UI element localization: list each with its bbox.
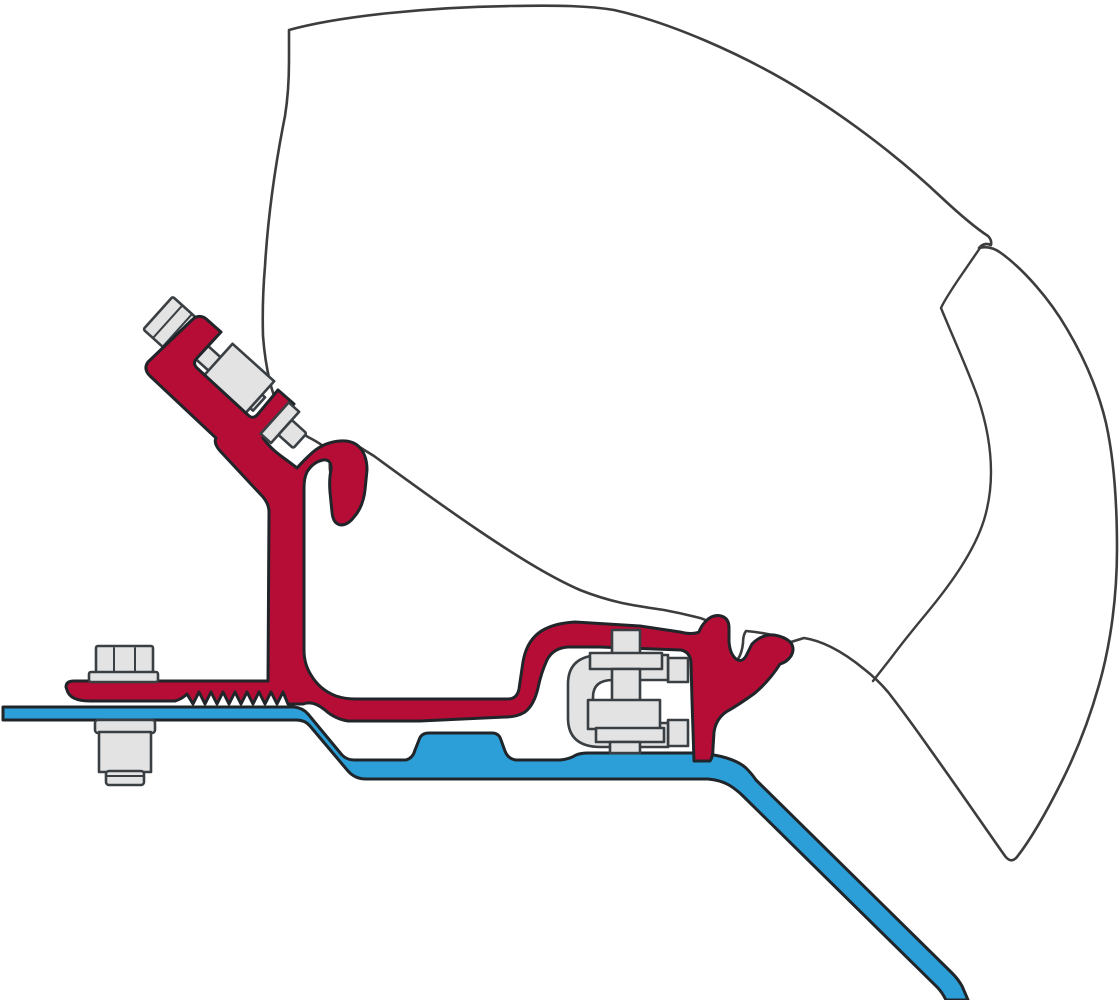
clamp-bolt-lower-shaft [610,742,640,753]
base-bolt-washer [89,672,158,682]
diagram-canvas [0,0,1120,1000]
rivet-nut-tip [106,771,144,785]
awning-case-outline [263,6,1117,861]
clamp-arm-end-tab-top [668,658,688,682]
clamp-bolt-mid-shaft [612,669,640,702]
base-bolt-head [89,646,158,682]
base-bolt-hex-head [96,646,153,673]
clamp-square-nut [588,700,660,729]
clamp-arm-end-tab-bottom [668,720,688,746]
clamp-bolt-upper-shaft [612,630,640,655]
base-bolt-rivet-nut [95,720,155,785]
rivet-nut-body [99,732,151,772]
clamp-lower-washer [596,728,664,742]
awning-adapter-diagram [0,0,1120,1000]
clamp-upper-washer [590,653,662,669]
